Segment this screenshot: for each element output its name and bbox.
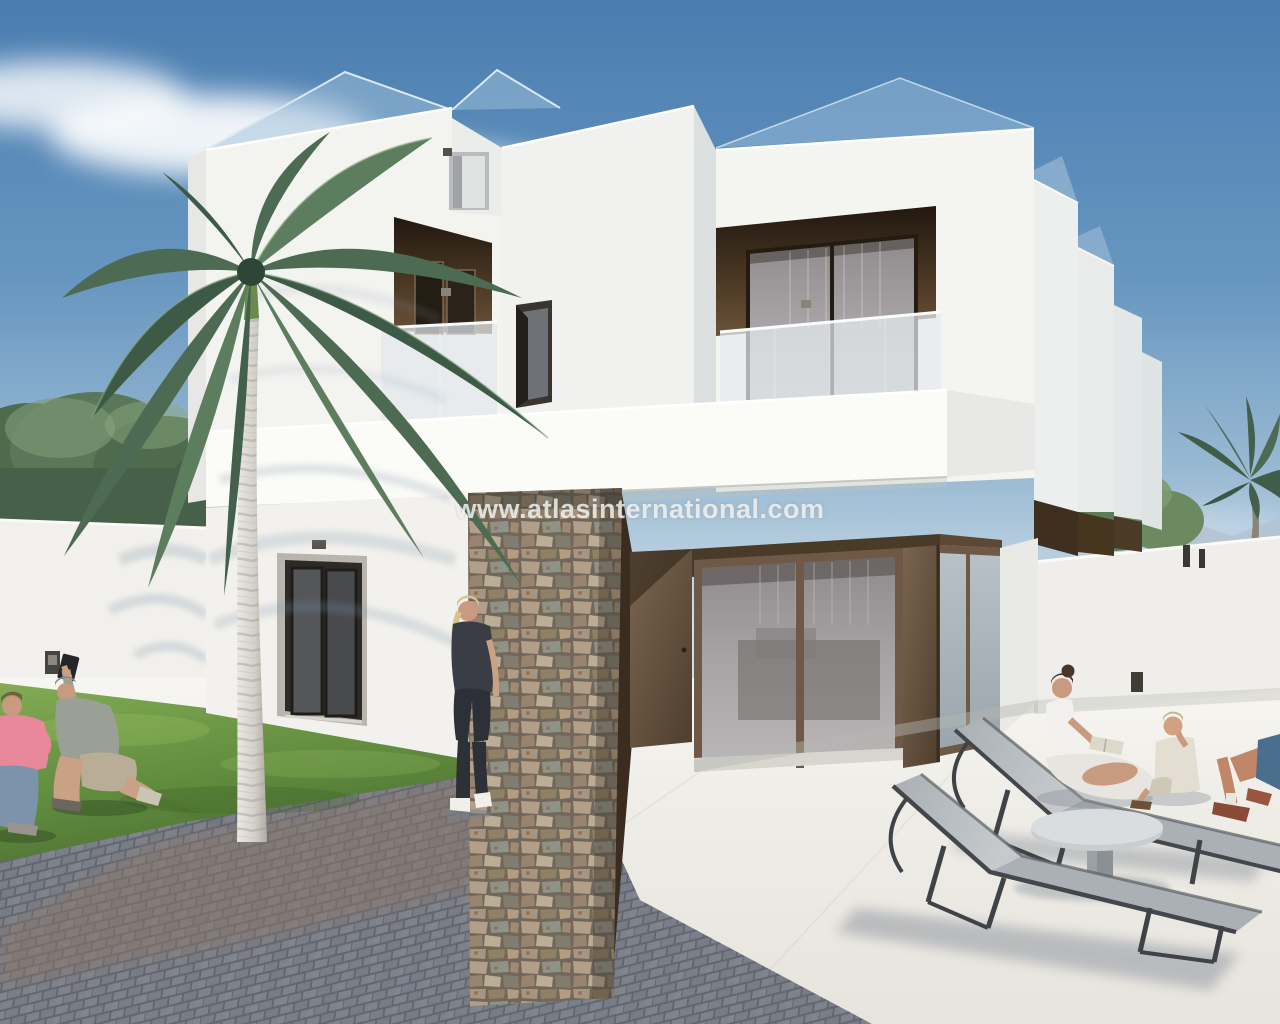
scene-render xyxy=(0,0,1280,1024)
wall-keypad xyxy=(45,651,60,674)
entrance-door xyxy=(630,549,692,748)
render-image: www.atlasinternational.com xyxy=(0,0,1280,1024)
roof-access-door xyxy=(443,148,489,210)
left-patio-door xyxy=(277,540,367,726)
wall-light xyxy=(1183,545,1190,567)
wall-light xyxy=(1199,549,1205,568)
outlet-box xyxy=(1131,672,1143,692)
stone-pillar xyxy=(468,488,622,1006)
stair-window xyxy=(516,300,552,408)
